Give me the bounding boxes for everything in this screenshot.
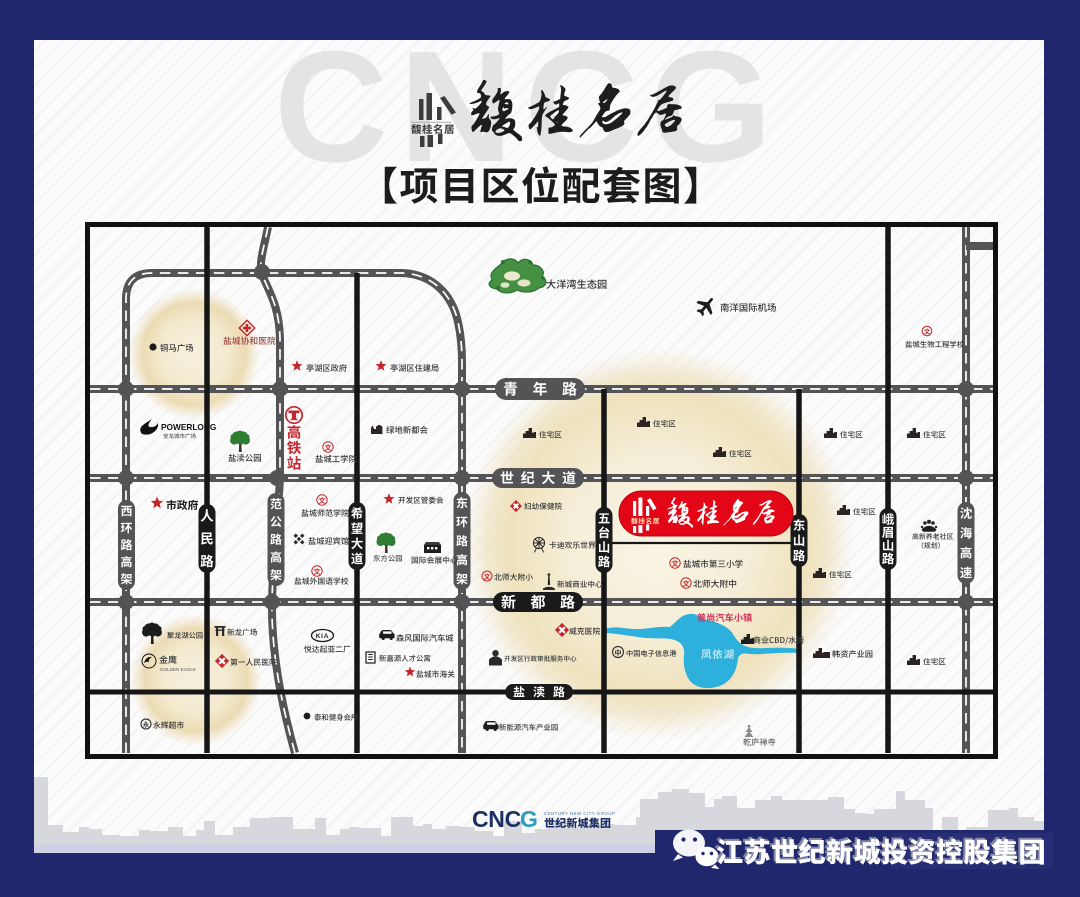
svg-text:G: G: [520, 806, 538, 832]
svg-text:CENTURY NEW CITY GROUP: CENTURY NEW CITY GROUP: [544, 811, 615, 816]
svg-text:GOLDEN EAGLE: GOLDEN EAGLE: [160, 667, 196, 672]
svg-text:POWERLONG: POWERLONG: [161, 422, 216, 432]
svg-text:CNC: CNC: [472, 806, 521, 832]
svg-text:CNCG: CNCG: [274, 19, 783, 195]
svg-text:KIA: KIA: [316, 633, 330, 640]
